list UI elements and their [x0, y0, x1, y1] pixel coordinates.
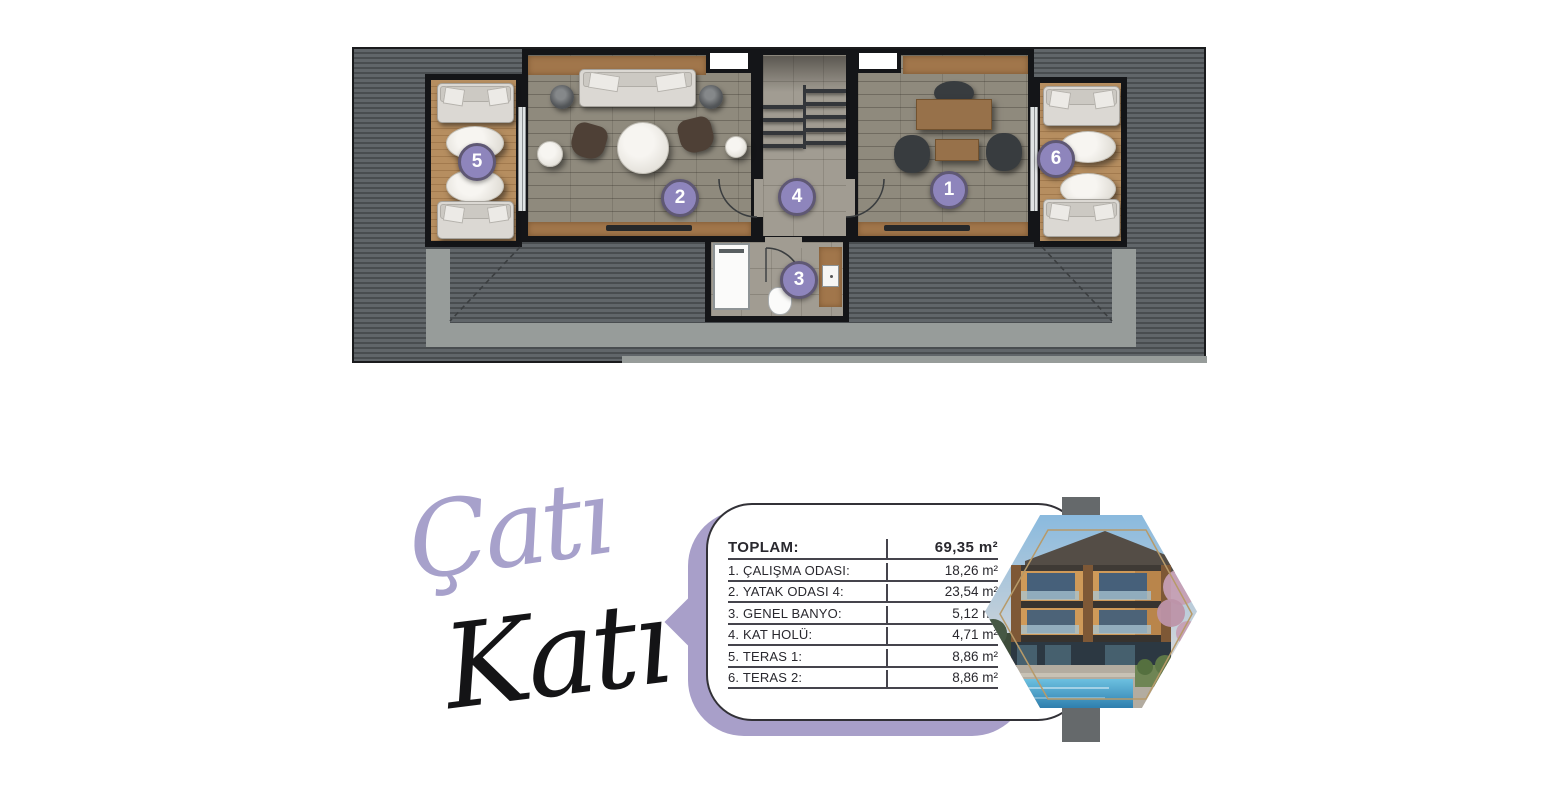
- area-label: 5. TERAS 1:: [728, 649, 888, 666]
- stair-tread: [805, 89, 846, 93]
- area-value: 23,54 m²: [888, 584, 998, 601]
- area-value: 8,86 m²: [888, 649, 998, 666]
- sofa: [437, 201, 514, 239]
- badge-number: 6: [1051, 148, 1062, 170]
- floor-plan: 1 2 3 4 5 6: [352, 47, 1206, 363]
- sofa: [437, 83, 514, 123]
- pillow: [443, 86, 465, 106]
- area-value: 4,71 m²: [888, 627, 998, 644]
- area-row: 2. YATAK ODASI 4: 23,54 m²: [728, 582, 998, 604]
- stair-tread: [763, 144, 804, 148]
- small-table: [935, 139, 979, 161]
- room-badge-1: 1: [930, 171, 968, 209]
- area-label: 2. YATAK ODASI 4:: [728, 584, 888, 601]
- pillow: [1092, 202, 1114, 221]
- floor-title-line2: Katı: [438, 585, 674, 727]
- pillow: [588, 71, 620, 91]
- area-row: 6. TERAS 2: 8,86 m²: [728, 668, 998, 690]
- sofa: [579, 69, 696, 107]
- area-label: 6. TERAS 2:: [728, 670, 888, 687]
- side-table: [699, 85, 723, 109]
- room-badge-3: 3: [780, 261, 818, 299]
- shower: [713, 243, 750, 310]
- stair-tread: [763, 131, 804, 135]
- area-value: 69,35 m²: [888, 539, 998, 558]
- desk: [916, 99, 992, 130]
- small-round-table: [537, 141, 563, 167]
- window-top-right: [855, 49, 901, 73]
- pillow: [1049, 89, 1071, 109]
- sink: [822, 265, 839, 287]
- area-row: 1. ÇALIŞMA ODASI: 18,26 m²: [728, 560, 998, 582]
- stair-tread: [763, 105, 804, 109]
- pillow: [486, 204, 508, 223]
- patio-band-bottom: [426, 323, 1136, 347]
- room-badge-6: 6: [1037, 140, 1075, 178]
- stair-stringer: [803, 85, 806, 149]
- room-badge-4: 4: [778, 178, 816, 216]
- floor-title-line1: Çatı: [402, 465, 615, 596]
- tv-unit: [884, 225, 970, 231]
- brochure-page: 1 2 3 4 5 6 Çatı Katı TOPLAM: 69,35 m² 1…: [0, 0, 1566, 800]
- stair-tread: [805, 128, 846, 132]
- area-value: 5,12 m²: [888, 606, 998, 623]
- area-row-total: TOPLAM: 69,35 m²: [728, 536, 998, 560]
- office-chair: [986, 133, 1022, 171]
- office-chair: [894, 135, 930, 173]
- area-label: 4. KAT HOLÜ:: [728, 627, 888, 644]
- roof-edge-strip: [622, 356, 1207, 363]
- wood-trim: [903, 56, 1028, 74]
- small-round-table: [725, 136, 747, 158]
- terrace-1-glass-door: [518, 107, 526, 211]
- stair-tread: [805, 102, 846, 106]
- round-coffee-table: [617, 122, 669, 174]
- sofa: [1043, 86, 1120, 126]
- room-badge-5: 5: [458, 143, 496, 181]
- pillow: [443, 204, 465, 223]
- pillow: [1049, 202, 1071, 221]
- sofa: [1043, 199, 1120, 237]
- area-label: TOPLAM:: [728, 539, 888, 558]
- area-value: 18,26 m²: [888, 563, 998, 580]
- badge-number: 1: [944, 179, 955, 201]
- room-badge-2: 2: [661, 179, 699, 217]
- area-value: 8,86 m²: [888, 670, 998, 687]
- stair-tread: [805, 141, 846, 145]
- pillow: [486, 86, 508, 106]
- area-row: 3. GENEL BANYO: 5,12 m²: [728, 603, 998, 625]
- stair-tread: [805, 115, 846, 119]
- area-label: 3. GENEL BANYO:: [728, 606, 888, 623]
- badge-number: 5: [472, 151, 483, 173]
- area-label: 1. ÇALIŞMA ODASI:: [728, 563, 888, 580]
- badge-number: 2: [675, 187, 686, 209]
- tv-unit: [606, 225, 692, 231]
- stair-tread: [763, 118, 804, 122]
- badge-number: 4: [792, 186, 803, 208]
- pillow: [1092, 89, 1114, 109]
- badge-number: 3: [794, 269, 805, 291]
- area-row: 4. KAT HOLÜ: 4,71 m²: [728, 625, 998, 647]
- window-top-left: [706, 49, 752, 73]
- area-row: 5. TERAS 1: 8,86 m²: [728, 646, 998, 668]
- area-table: TOPLAM: 69,35 m² 1. ÇALIŞMA ODASI: 18,26…: [728, 536, 998, 689]
- side-table: [550, 85, 574, 109]
- pillow: [655, 71, 687, 91]
